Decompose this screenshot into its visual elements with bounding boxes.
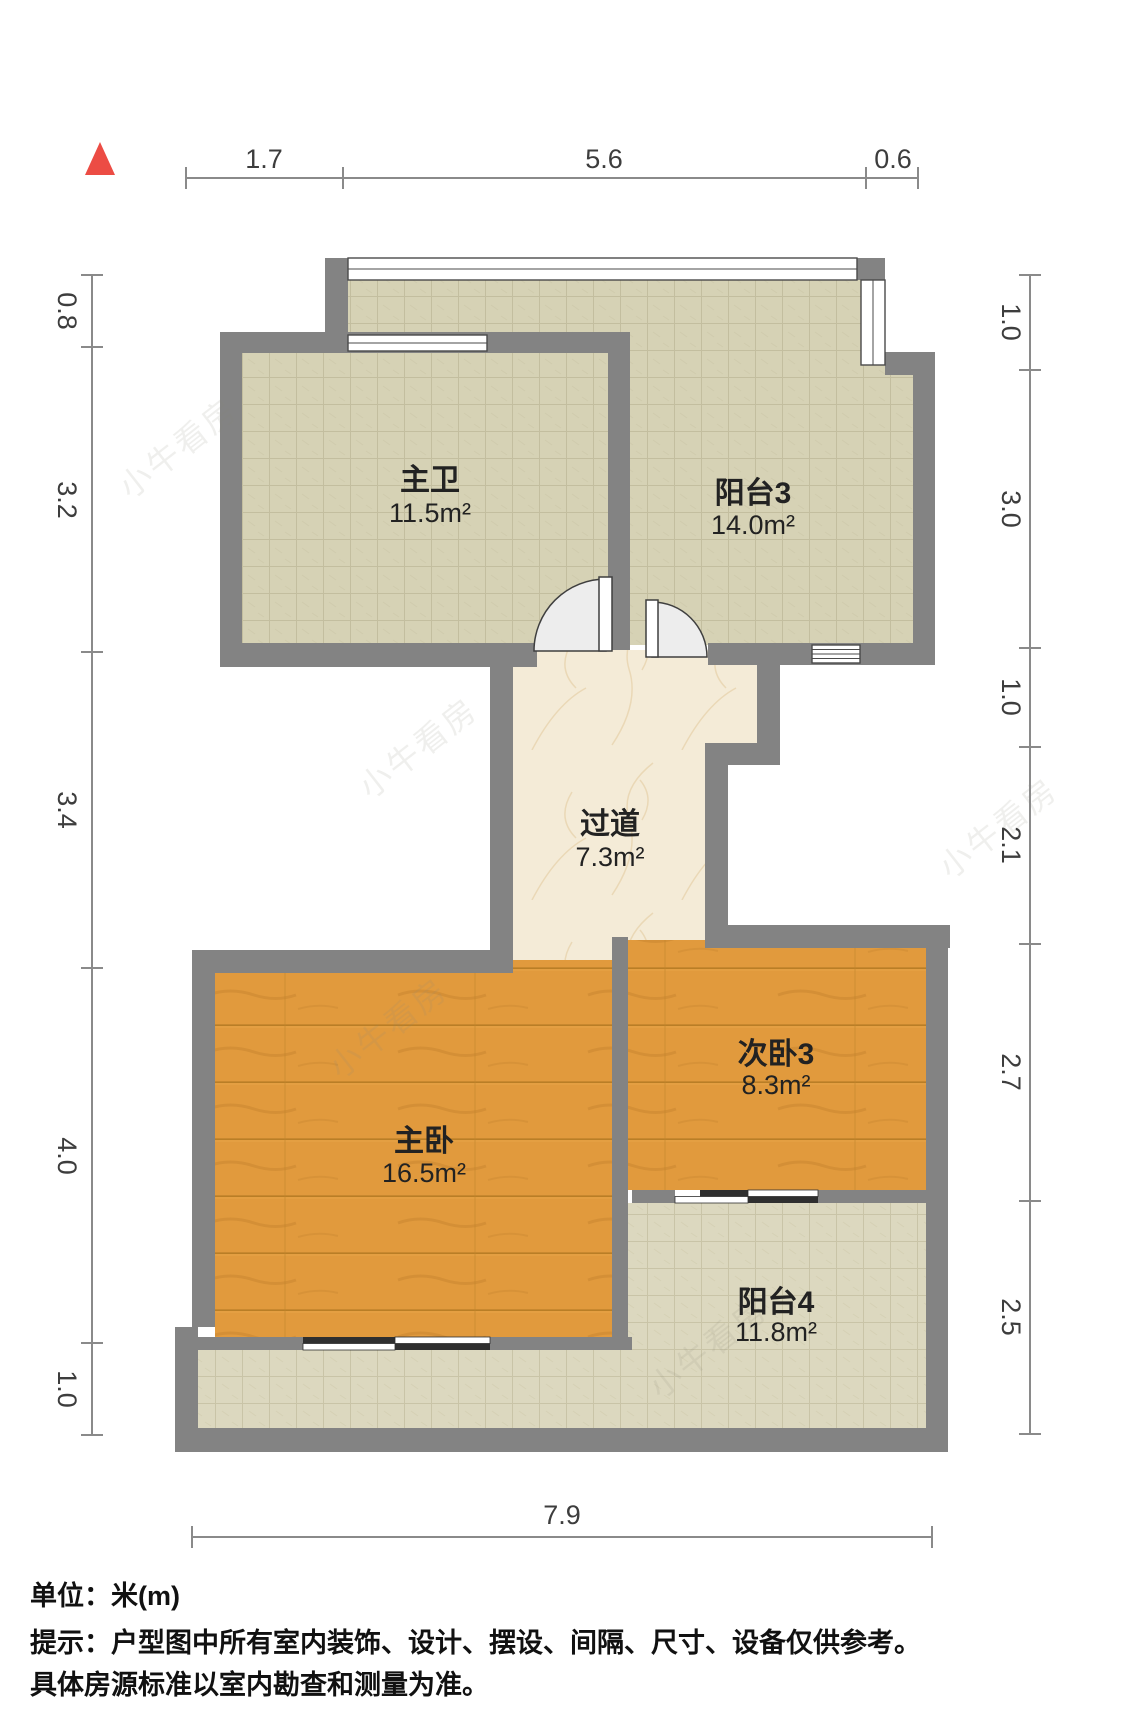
wall-bedroom3-top xyxy=(728,925,950,948)
dim-left-3: 3.4 xyxy=(52,791,82,829)
bedroom3-label: 次卧3 xyxy=(738,1038,815,1071)
wall-bedroom3-bottom-left xyxy=(632,1190,675,1203)
dim-right-3: 1.0 xyxy=(996,678,1026,716)
wall-balcony3-right xyxy=(913,365,935,665)
watermark-text: 小牛看房 xyxy=(352,691,484,806)
master-bedroom-area: 16.5m² xyxy=(382,1158,466,1188)
window-top xyxy=(348,258,857,280)
footer-notes: 单位：米(m) 提示：户型图中所有室内装饰、设计、摆设、间隔、尺寸、设备仅供参考… xyxy=(30,1580,921,1700)
window-balcony3-bottom xyxy=(812,645,860,663)
corridor-area: 7.3m² xyxy=(575,842,644,872)
dim-right-6: 2.5 xyxy=(996,1298,1026,1336)
dim-top-2: 5.6 xyxy=(585,144,623,174)
dim-bottom-1: 7.9 xyxy=(543,1500,581,1530)
master-bedroom-label: 主卧 xyxy=(394,1125,454,1158)
balcony3-label: 阳台3 xyxy=(715,476,792,510)
balcony4-label: 阳台4 xyxy=(738,1285,815,1319)
wall-bottom-outer xyxy=(175,1428,948,1452)
footer-units: 单位：米(m) xyxy=(30,1580,180,1611)
dim-top-3: 0.6 xyxy=(874,144,912,174)
dim-left-4: 4.0 xyxy=(52,1137,82,1175)
dim-right-4: 2.1 xyxy=(996,826,1026,864)
corridor-floor xyxy=(513,650,780,965)
balcony4-area: 11.8m² xyxy=(735,1317,817,1347)
bedroom3-area: 8.3m² xyxy=(741,1070,810,1100)
wall-right-outer xyxy=(926,925,948,1452)
dim-left-2: 3.2 xyxy=(52,481,82,519)
footer-notice: 具体房源标准以室内勘查和测量为准。 xyxy=(30,1669,489,1700)
dim-left-1: 0.8 xyxy=(52,292,82,330)
wall-bedroom-divider xyxy=(612,937,628,1350)
window-masterbath-top xyxy=(348,335,487,351)
wall-masterbed-top xyxy=(192,950,513,973)
window-balcony3-right xyxy=(861,280,885,365)
balcony3-area: 14.0m² xyxy=(711,510,795,540)
master-bath-area: 11.5m² xyxy=(389,498,471,528)
corridor-label: 过道 xyxy=(580,808,640,841)
dim-top-1: 1.7 xyxy=(245,144,283,174)
wall-corridor-left xyxy=(490,643,513,973)
dim-line-top xyxy=(186,167,918,189)
dim-left-5: 1.0 xyxy=(52,1370,82,1408)
sliding-door-masterbed xyxy=(303,1337,490,1350)
wall-masterbed-bottom-left xyxy=(193,1337,303,1350)
floorplan-canvas: 小牛看房 小牛看房 小牛看房 小牛看房 小牛看房 主卫 11.5m² 阳台3 1… xyxy=(0,0,1125,1711)
dim-right-5: 2.7 xyxy=(996,1053,1026,1091)
wall-masterbath-left xyxy=(220,332,242,667)
floorplan-page: 小牛看房 小牛看房 小牛看房 小牛看房 小牛看房 主卫 11.5m² 阳台3 1… xyxy=(0,0,1125,1711)
wall-top-right-corner xyxy=(855,258,885,280)
master-bath-label: 主卫 xyxy=(400,464,460,497)
wall-corridor-right-lower xyxy=(705,743,728,948)
wall-bedroom3-bottom-right xyxy=(818,1190,926,1203)
footer-tip: 提示：户型图中所有室内装饰、设计、摆设、间隔、尺寸、设备仅供参考。 xyxy=(30,1627,921,1658)
wall-masterbath-bottom xyxy=(220,643,537,667)
dim-right-2: 3.0 xyxy=(996,490,1026,528)
wall-masterbed-bottom-right xyxy=(490,1337,632,1350)
floors xyxy=(198,278,926,1428)
dim-right-1: 1.0 xyxy=(996,303,1026,341)
north-compass-icon xyxy=(85,142,115,175)
wall-masterbed-left xyxy=(192,950,215,1327)
sliding-door-bedroom3 xyxy=(675,1190,818,1203)
dim-line-left xyxy=(81,275,103,1435)
